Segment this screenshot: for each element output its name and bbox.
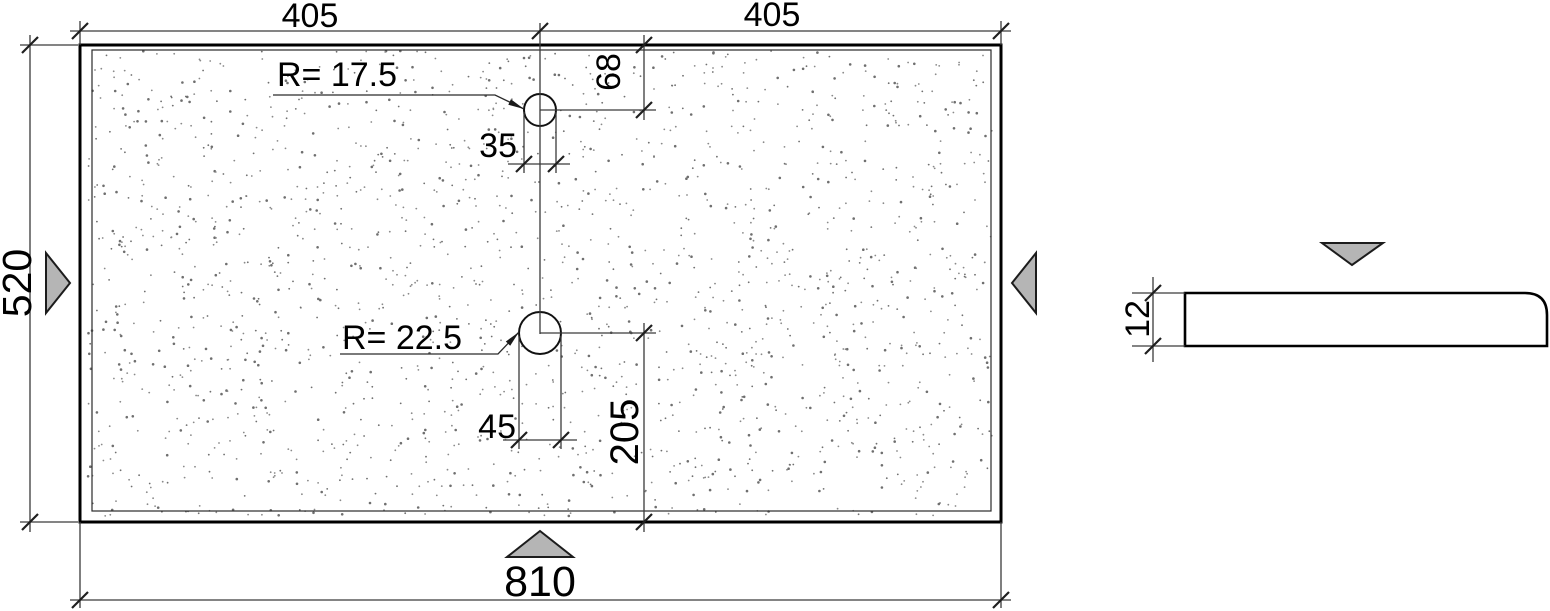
edge-marker-bottom [507, 531, 573, 557]
edge-marker-right [1012, 253, 1036, 313]
edge-marker-section-top [1322, 243, 1383, 265]
section-view: 12 [1119, 243, 1550, 362]
edge-marker-left [46, 253, 70, 313]
dim-label-hole-top-width: 35 [479, 127, 517, 165]
leader-hole-top-radius: R= 17.5 [273, 56, 524, 109]
dim-label-hole-top-offset: 68 [590, 53, 628, 91]
section-profile [1185, 293, 1547, 346]
technical-drawing-canvas: 405 405 520 810 68 [0, 0, 1550, 611]
dim-label-top-left: 405 [282, 0, 339, 35]
dim-hole-bottom-205: 205 [540, 323, 656, 532]
dim-label-hole-bottom-offset: 205 [603, 399, 647, 466]
dim-label-hole-top-radius: R= 17.5 [277, 56, 397, 94]
dim-hole-bottom-45: 45 [478, 336, 577, 449]
dim-label-hole-bottom-radius: R= 22.5 [342, 319, 462, 357]
worktop-drawing: 405 405 520 810 68 [0, 0, 1550, 611]
dim-thickness-12: 12 [1119, 277, 1185, 362]
plan-view: 405 405 520 810 68 [0, 0, 1036, 608]
dim-label-width: 810 [504, 558, 576, 606]
dim-label-height: 520 [0, 249, 40, 317]
dim-hole-top-35: 35 [479, 112, 570, 173]
dim-hole-top-68: 68 [540, 35, 656, 120]
leader-hole-bottom-radius: R= 22.5 [340, 319, 519, 357]
dim-label-top-right: 405 [744, 0, 801, 34]
dim-label-thickness: 12 [1119, 300, 1157, 338]
dim-label-hole-bottom-width: 45 [478, 408, 516, 446]
